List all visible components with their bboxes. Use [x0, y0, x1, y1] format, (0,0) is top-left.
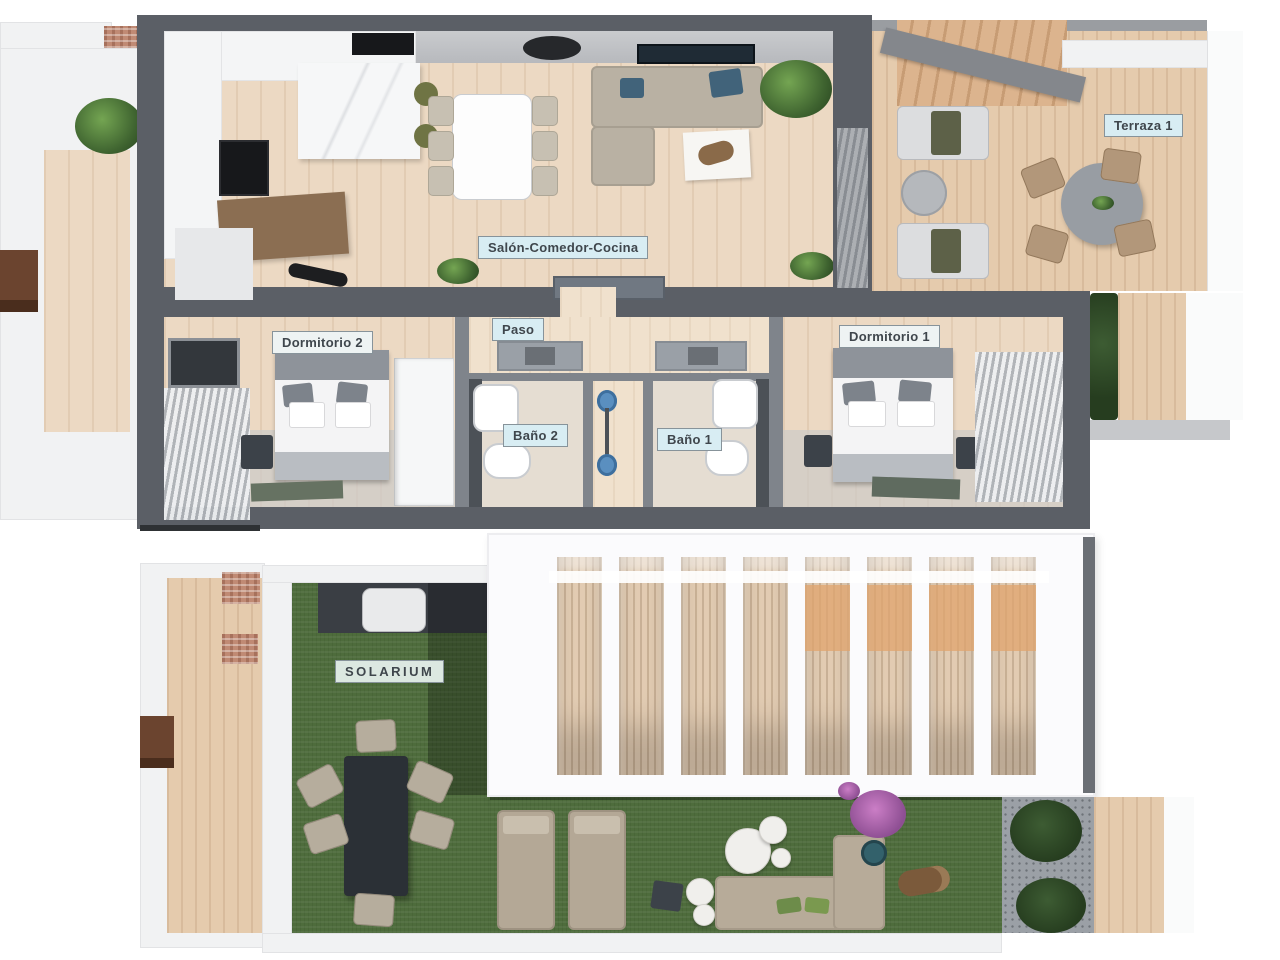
bougainvillea	[838, 782, 860, 800]
pergola-wood-beam	[929, 585, 974, 651]
neighbour-cabinet	[140, 716, 174, 768]
bed-headboard	[833, 348, 953, 378]
living-plant	[760, 60, 832, 118]
dining-chair	[532, 96, 558, 126]
wall-top	[137, 15, 872, 32]
garden-pouf	[771, 848, 791, 868]
neighbour-bbq-brick	[222, 634, 258, 664]
dining-chair	[428, 166, 454, 196]
tv-screen	[637, 44, 755, 64]
neighbour-bench	[0, 250, 38, 312]
sofa-chaise	[591, 126, 655, 186]
gravel-plant	[1016, 878, 1086, 933]
neighbour-plant	[75, 98, 143, 154]
lounger-pillow	[574, 816, 620, 834]
pergola-wood-beam	[805, 585, 850, 651]
bano1-basin	[712, 379, 758, 429]
pergola-cross-beam	[549, 571, 1049, 583]
living-plant	[790, 252, 834, 280]
garden-lounger	[497, 810, 555, 930]
label-salon: Salón-Comedor-Cocina	[478, 236, 648, 259]
dorm2-window	[168, 338, 240, 388]
right-margin-wall	[1164, 797, 1194, 933]
wall-left	[137, 15, 164, 529]
label-paso: Paso	[492, 318, 544, 341]
neighbour-bbq-brick	[222, 572, 260, 604]
dorm2-nightstand	[241, 435, 273, 469]
dorm2-shutters	[164, 388, 250, 520]
lower-floor-plan: SOLARIUM	[0, 520, 1280, 960]
garden-pouf	[759, 816, 787, 844]
pergola-edge-strip	[1083, 537, 1095, 793]
wall-right-bedrooms	[1063, 287, 1090, 529]
side-white-floor	[1186, 293, 1243, 420]
solarium-table	[344, 756, 408, 896]
neighbour-solarium-deck	[167, 578, 262, 933]
door-opening	[560, 287, 616, 317]
lounger-pillow	[503, 816, 549, 834]
bicycle-wheel	[597, 454, 617, 476]
terraza-chair	[1100, 148, 1142, 185]
garden-lounger	[568, 810, 626, 930]
pergola-wood-beam	[991, 585, 1036, 651]
lounger-towel	[931, 229, 961, 273]
pergola-slot	[619, 557, 664, 775]
pergola-slot	[929, 557, 974, 775]
solarium-rim-top	[262, 565, 492, 583]
dorm2-wardrobe	[394, 358, 454, 506]
garden-side-table	[650, 880, 684, 912]
partition-dorm1	[769, 317, 783, 507]
right-neighbour-deck	[1094, 797, 1164, 933]
terraza-lounger	[897, 106, 989, 160]
bed-blanket	[275, 452, 389, 480]
dining-chair	[532, 131, 558, 161]
lounger-towel	[931, 111, 961, 155]
glass-door	[837, 128, 868, 288]
building-shadow	[428, 583, 490, 795]
sofa-pillow	[708, 68, 743, 98]
pergola-wood-beam	[867, 585, 912, 651]
pergola-slot	[557, 557, 602, 775]
dining-chair	[428, 131, 454, 161]
bicycle	[596, 388, 618, 492]
label-bano-1: Baño 1	[657, 428, 722, 451]
pergola-slot	[991, 557, 1036, 775]
gravel-plant	[1010, 800, 1082, 862]
bed-pillow	[897, 401, 935, 427]
glass-side-table	[861, 840, 887, 866]
partition-hall-bano1	[643, 379, 653, 507]
bano2-toilet	[483, 443, 531, 479]
dorm2-rug	[251, 480, 344, 501]
solarium-rim-bottom	[262, 933, 1002, 953]
ceiling-fan	[523, 36, 581, 60]
kitchen-counter-left	[164, 31, 222, 259]
bed-headboard	[275, 350, 389, 380]
pergola-slot	[681, 557, 726, 775]
water-heater	[362, 588, 426, 632]
bicycle-frame	[605, 408, 609, 458]
roof-edge-strip	[140, 525, 260, 531]
pergola-slot	[743, 557, 788, 775]
garden-pouf	[686, 878, 714, 906]
dorm1-rug	[872, 476, 961, 499]
sofa-pillow	[620, 78, 644, 98]
dining-table	[452, 94, 532, 200]
upper-floor-plan: Salón-Comedor-Cocina Terraza 1 Dormitori…	[0, 0, 1280, 530]
table-centerpiece	[1092, 196, 1114, 210]
neighbour-terrace-floor	[44, 150, 130, 432]
bougainvillea	[850, 790, 906, 838]
label-solarium: SOLARIUM	[335, 660, 444, 683]
right-edge-wall	[1207, 31, 1243, 291]
garden-pouf	[693, 904, 715, 926]
garden-pillow-green	[804, 897, 829, 914]
solarium-rim-left	[262, 565, 292, 945]
floorplan-canvas: Salón-Comedor-Cocina Terraza 1 Dormitori…	[0, 0, 1280, 960]
dining-chair	[532, 166, 558, 196]
label-terraza-1: Terraza 1	[1104, 114, 1183, 137]
oven-column	[219, 140, 269, 196]
label-bano-2: Baño 2	[503, 424, 568, 447]
dining-chair	[428, 96, 454, 126]
label-dormitorio-1: Dormitorio 1	[839, 325, 940, 348]
kitchen-island	[298, 63, 420, 159]
side-hedge	[1090, 293, 1118, 420]
dorm1-bed	[833, 348, 953, 482]
terraza-lounger	[897, 223, 989, 279]
pergola-slot	[867, 557, 912, 775]
terraza-side-table	[901, 170, 947, 216]
side-deck	[1118, 293, 1186, 420]
dorm2-bed	[275, 350, 389, 480]
partition-dorm2	[455, 317, 469, 507]
bed-pillow	[335, 402, 371, 428]
partition-bano2-hall	[583, 379, 593, 507]
bed-pillow	[848, 401, 886, 427]
solarium-chair	[355, 719, 397, 753]
living-plant	[437, 258, 479, 284]
bed-pillow	[289, 402, 325, 428]
dorm1-shutters	[975, 352, 1063, 502]
solarium-chair	[353, 893, 395, 928]
cooktop	[352, 33, 414, 55]
entry-tile-floor	[175, 228, 253, 300]
bano1-vanity-sink	[688, 347, 718, 365]
pergola	[487, 533, 1095, 797]
side-gray-slab	[1090, 420, 1230, 440]
pergola-slot	[805, 557, 850, 775]
bano2-vanity-sink	[525, 347, 555, 365]
label-dormitorio-2: Dormitorio 2	[272, 331, 373, 354]
dorm1-nightstand	[804, 435, 832, 467]
